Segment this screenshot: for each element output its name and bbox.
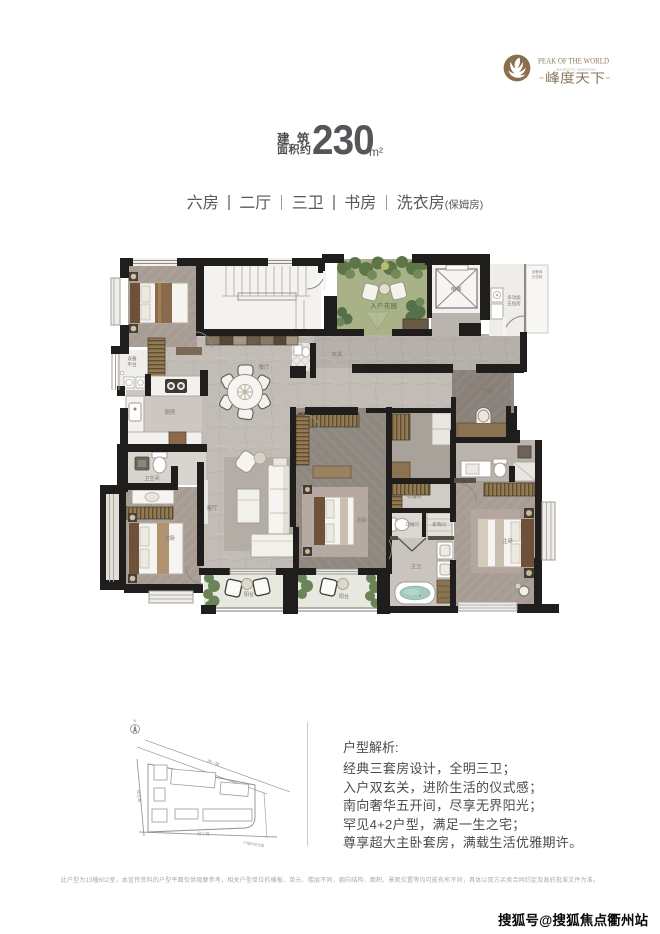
svg-text:五恒房: 五恒房 <box>507 300 521 307</box>
svg-text:主卧: 主卧 <box>502 537 514 545</box>
svg-text:经二路: 经二路 <box>197 830 211 837</box>
svg-text:家政间: 家政间 <box>432 521 446 528</box>
svg-text:五恒网: 五恒网 <box>532 274 543 279</box>
svg-text:阳台: 阳台 <box>339 593 349 600</box>
svg-text:入户花园: 入户花园 <box>370 302 397 310</box>
svg-text:餐厅: 餐厅 <box>258 363 270 371</box>
svg-text:N: N <box>134 718 137 723</box>
svg-text:设备间: 设备间 <box>532 269 543 274</box>
svg-text:厨房: 厨房 <box>164 408 176 416</box>
svg-text:次卧: 次卧 <box>164 534 176 542</box>
svg-text:次卧: 次卧 <box>356 516 368 524</box>
svg-text:次卧: 次卧 <box>157 308 169 316</box>
svg-text:多功能: 多功能 <box>507 294 521 301</box>
svg-text:设备: 设备 <box>127 355 137 362</box>
svg-text:卫生间: 卫生间 <box>144 475 159 482</box>
svg-text:户型所在位置: 户型所在位置 <box>243 840 265 848</box>
svg-text:马桶间: 马桶间 <box>405 521 419 528</box>
svg-text:经五路: 经五路 <box>135 789 143 803</box>
svg-text:阳台: 阳台 <box>244 591 254 598</box>
svg-text:电梯: 电梯 <box>450 285 462 293</box>
svg-text:客厅: 客厅 <box>206 504 218 512</box>
svg-text:玄关: 玄关 <box>331 350 343 358</box>
svg-text:主卫: 主卫 <box>411 563 421 570</box>
svg-text:书房: 书房 <box>482 387 494 395</box>
svg-text:衣帽间: 衣帽间 <box>407 493 422 500</box>
svg-text:平台: 平台 <box>127 361 137 368</box>
